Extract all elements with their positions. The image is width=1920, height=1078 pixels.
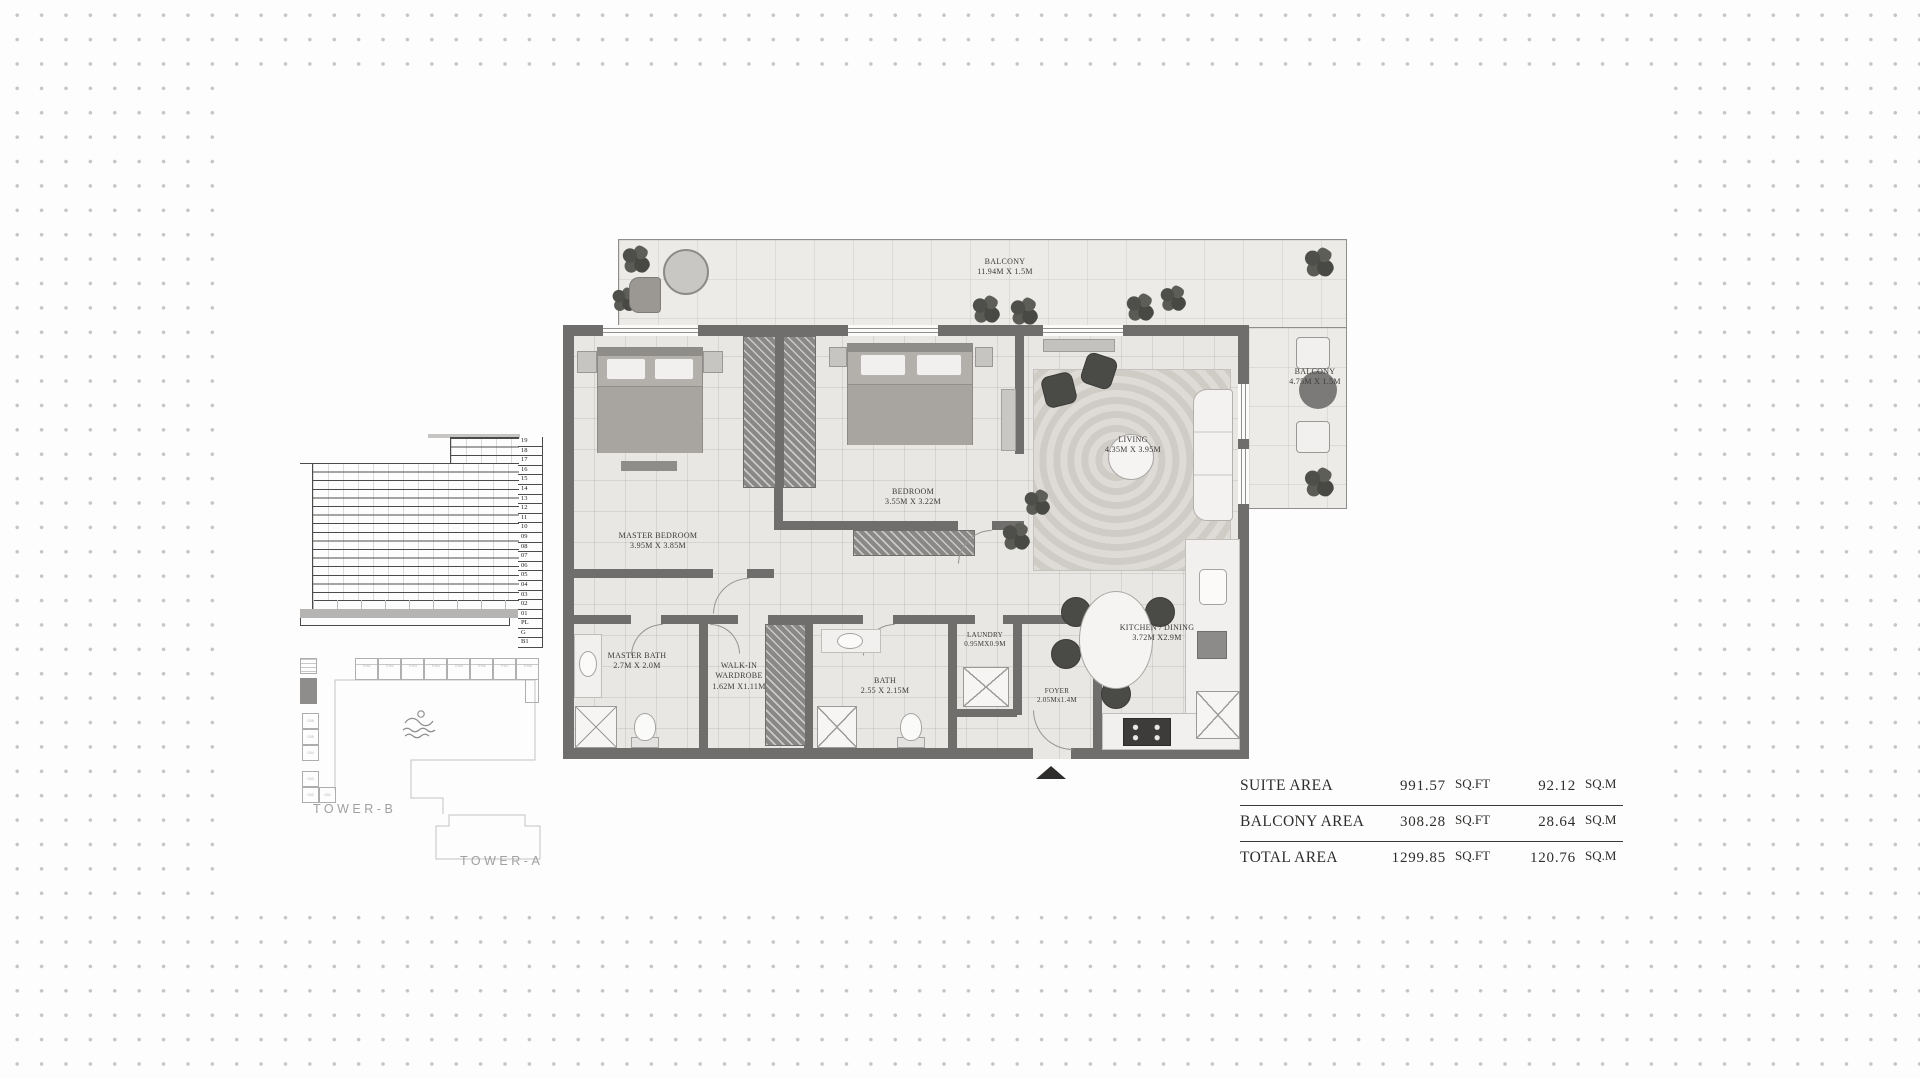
dining-chair: [1051, 639, 1081, 669]
floor-label: 03: [518, 591, 542, 601]
window: [603, 325, 698, 336]
floor-label: 13: [518, 495, 542, 505]
bed-bench: [621, 461, 677, 471]
wall: [1123, 325, 1249, 336]
elevation-main-block: [312, 463, 519, 602]
townhouse-box: TH05: [447, 658, 470, 680]
room-name: LIVING: [1105, 435, 1161, 445]
window: [1043, 325, 1123, 336]
ground-unit-box: G06: [302, 713, 319, 729]
pillow: [654, 358, 694, 380]
wall: [774, 521, 958, 530]
floor-label: 07: [518, 552, 542, 562]
area-sqm-unit: SQ.M: [1576, 848, 1623, 864]
room-dims: 0.95MX0.9M: [964, 640, 1006, 649]
area-row-label: TOTAL AREA: [1240, 849, 1390, 867]
ground-unit-label: G03: [307, 777, 314, 781]
area-table-row: TOTAL AREA 1299.85 SQ.FT 120.76 SQ.M: [1240, 842, 1623, 878]
floor-label: G: [518, 629, 542, 639]
wall: [768, 615, 863, 624]
ground-unit-label: G06: [307, 719, 314, 723]
nightstand: [703, 351, 723, 373]
elevation-floor-labels: 19 18 17 16 15 14 13 12 11 10 09 08 07 0…: [518, 437, 543, 648]
floor-label: 19: [518, 437, 542, 447]
room-name: BALCONY: [1289, 367, 1341, 377]
room-dims: 2.05Mx1.4M: [1037, 696, 1077, 705]
plant-icon: [1023, 489, 1051, 517]
basin: [579, 651, 597, 677]
window: [1238, 384, 1249, 439]
area-sqft-unit: SQ.FT: [1446, 812, 1490, 828]
oven: [1197, 631, 1227, 659]
floor-label: 14: [518, 485, 542, 495]
floor-label: 15: [518, 475, 542, 485]
room-dims: 1.62M X1.11M: [708, 682, 770, 692]
townhouse-box: TH02: [378, 658, 401, 680]
room-label-living: LIVING 4.35M X 3.95M: [1105, 435, 1161, 456]
site-ramp: [300, 658, 317, 674]
townhouse-box: TH01: [355, 658, 378, 680]
room-label-walkin: WALK-IN WARDROBE 1.62M X1.11M: [708, 661, 770, 692]
area-sqft-value: 1299.85: [1390, 850, 1446, 867]
wall: [698, 325, 848, 336]
blanket: [848, 384, 972, 445]
balcony-chair: [1296, 337, 1330, 369]
room-name: LAUNDRY: [964, 631, 1006, 640]
headboard: [848, 344, 972, 352]
master-bed: [597, 347, 703, 453]
site-outline: [297, 650, 547, 875]
ground-unit-box: G03: [302, 771, 319, 787]
kitchen-sink: [1199, 569, 1227, 605]
floor-plan: BALCONY 11.94M X 1.5M BALCONY 4.75M X 1.…: [563, 239, 1347, 784]
bedroom-wardrobe: [783, 336, 816, 488]
floor-label: 05: [518, 571, 542, 581]
pillow: [860, 354, 906, 376]
site-plan: TH01 TH02 TH03 TH04 TH05 TH06 TH07 TH08 …: [297, 650, 547, 875]
elevation-basement-level: [300, 618, 510, 627]
media-console: [1043, 339, 1115, 352]
elevation-podium-level: [312, 600, 519, 609]
area-sqft-value: 308.28: [1390, 814, 1446, 831]
ground-unit-label: G05: [307, 735, 314, 739]
plant-icon: [621, 245, 651, 275]
area-row-label: SUITE AREA: [1240, 777, 1390, 795]
fridge-shaft-box: [1196, 691, 1240, 739]
page-canvas: 19 18 17 16 15 14 13 12 11 10 09 08 07 0…: [0, 0, 1920, 1078]
townhouse-label: TH05: [454, 664, 463, 668]
site-small-unit: [525, 679, 539, 703]
wall: [563, 748, 1033, 759]
area-sqm-unit: SQ.M: [1576, 812, 1623, 828]
elevation-top-block: [450, 437, 519, 464]
basin: [837, 633, 863, 649]
ground-unit-label: G04: [307, 751, 314, 755]
wall: [563, 325, 574, 759]
sofa: [1193, 389, 1233, 521]
floor-label: 16: [518, 466, 542, 476]
hall-closet: [853, 530, 975, 556]
wall: [661, 615, 738, 624]
entry-arrow-icon: [1036, 766, 1066, 779]
wall: [563, 569, 713, 578]
wall: [699, 624, 708, 748]
pillow: [606, 358, 646, 380]
master-wardrobe: [743, 336, 776, 488]
plant-icon: [1303, 467, 1335, 499]
floor-label: 12: [518, 504, 542, 514]
area-sqm-value: 28.64: [1490, 814, 1576, 831]
balcony-chair: [1296, 421, 1330, 453]
wall: [957, 709, 1017, 717]
stove-cooktop: [1123, 718, 1171, 746]
townhouse-label: TH07: [500, 664, 509, 668]
room-name: MASTER BEDROOM: [619, 531, 698, 541]
floor-label: 04: [518, 581, 542, 591]
floor-label: 17: [518, 456, 542, 466]
ground-unit-box: G02: [302, 787, 319, 803]
room-label-laundry: LAUNDRY 0.95MX0.9M: [964, 631, 1006, 649]
room-dims: 4.75M X 1.5M: [1289, 377, 1341, 387]
townhouse-box: TH03: [401, 658, 424, 680]
nightstand: [975, 347, 993, 367]
desk: [1001, 389, 1016, 451]
walkin-wardrobe-shelves: [765, 624, 806, 746]
floor-label: 18: [518, 447, 542, 457]
floor-label: 11: [518, 514, 542, 524]
shower-box: [575, 706, 617, 748]
ground-unit-box: G05: [302, 729, 319, 745]
room-dims: 2.7M X 2.0M: [608, 661, 667, 671]
floor-label: 10: [518, 523, 542, 533]
wall: [747, 569, 774, 578]
townhouse-box: TH06: [470, 658, 493, 680]
townhouse-box: TH04: [424, 658, 447, 680]
wall: [1013, 615, 1022, 715]
ground-unit-label: G01: [324, 793, 331, 797]
room-name: MASTER BATH: [608, 651, 667, 661]
room-name: BATH: [861, 676, 910, 686]
floor-label: 09: [518, 533, 542, 543]
shower-box: [817, 706, 857, 748]
room-label-master-bedroom: MASTER BEDROOM 3.95M X 3.85M: [619, 531, 698, 552]
wall: [893, 615, 975, 624]
ground-unit-box: G04: [302, 745, 319, 761]
townhouse-label: TH06: [477, 664, 486, 668]
floor-label: 06: [518, 562, 542, 572]
townhouse-label: TH08: [523, 664, 532, 668]
floor-label: 08: [518, 543, 542, 553]
townhouse-box: TH07: [493, 658, 516, 680]
room-label-balcony-right: BALCONY 4.75M X 1.5M: [1289, 367, 1341, 388]
window: [848, 325, 938, 336]
tower-b-label: TOWER-B: [313, 802, 396, 816]
area-row-label: BALCONY AREA: [1240, 813, 1390, 831]
room-name: BALCONY: [977, 257, 1033, 267]
room-dims: 3.55M X 3.22M: [885, 497, 941, 507]
townhouse-label: TH03: [408, 664, 417, 668]
balcony-door: [1238, 449, 1249, 504]
wall: [1238, 439, 1249, 449]
room-dims: 3.72M X2.9M: [1120, 633, 1195, 643]
room-dims: 4.35M X 3.95M: [1105, 445, 1161, 455]
ground-unit-label: G02: [307, 793, 314, 797]
nightstand: [829, 347, 847, 367]
townhouse-label: TH04: [431, 664, 440, 668]
room-name: FOYER: [1037, 687, 1077, 696]
plant-icon: [1159, 285, 1187, 313]
plant-icon: [971, 295, 1001, 325]
room-name: BEDROOM: [885, 487, 941, 497]
plant-icon: [1009, 297, 1039, 327]
site-highlight-unit: [300, 678, 317, 704]
wall: [563, 615, 631, 624]
room-name: WALK-IN WARDROBE: [708, 661, 770, 682]
headboard: [598, 348, 702, 356]
blanket: [598, 386, 702, 453]
wall: [1238, 325, 1249, 384]
toilet: [900, 713, 922, 741]
area-sqft-value: 991.57: [1390, 778, 1446, 795]
room-dims: 2.55 X 2.15M: [861, 686, 910, 696]
area-sqm-value: 92.12: [1490, 778, 1576, 795]
room-label-kitchen: KITCHEN / DINING 3.72M X2.9M: [1120, 623, 1195, 644]
wall: [948, 615, 957, 748]
balcony-table: [663, 249, 709, 295]
townhouse-box: TH08: [516, 658, 539, 680]
area-sqft-unit: SQ.FT: [1446, 776, 1490, 792]
pillow: [916, 354, 962, 376]
bedroom-bed: [847, 343, 973, 445]
toilet: [634, 713, 656, 741]
townhouse-label: TH01: [362, 664, 371, 668]
wall: [1015, 336, 1024, 454]
tower-elevation-diagram: 19 18 17 16 15 14 13 12 11 10 09 08 07 0…: [300, 437, 542, 637]
room-label-balcony-top: BALCONY 11.94M X 1.5M: [977, 257, 1033, 278]
floor-label: 02: [518, 600, 542, 610]
room-label-foyer: FOYER 2.05Mx1.4M: [1037, 687, 1077, 705]
tower-a-label: TOWER-A: [460, 854, 543, 868]
area-table: SUITE AREA 991.57 SQ.FT 92.12 SQ.M BALCO…: [1240, 770, 1623, 878]
floor-label: B1: [518, 638, 542, 648]
area-table-row: BALCONY AREA 308.28 SQ.FT 28.64 SQ.M: [1240, 806, 1623, 842]
area-sqm-value: 120.76: [1490, 850, 1576, 867]
plant-icon: [1001, 522, 1031, 552]
plant-icon: [1303, 247, 1335, 279]
room-label-bedroom: BEDROOM 3.55M X 3.22M: [885, 487, 941, 508]
plant-icon: [1125, 293, 1155, 323]
room-label-master-bath: MASTER BATH 2.7M X 2.0M: [608, 651, 667, 672]
nightstand: [577, 351, 597, 373]
pool-swimmer-icon: [403, 711, 435, 738]
balcony-armchair: [629, 277, 661, 313]
laundry-machine-box: [963, 667, 1009, 707]
floor-label: PL: [518, 619, 542, 629]
room-name: KITCHEN / DINING: [1120, 623, 1195, 633]
room-dims: 3.95M X 3.85M: [619, 541, 698, 551]
room-label-bath: BATH 2.55 X 2.15M: [861, 676, 910, 697]
area-sqft-unit: SQ.FT: [1446, 848, 1490, 864]
townhouse-label: TH02: [385, 664, 394, 668]
area-table-row: SUITE AREA 991.57 SQ.FT 92.12 SQ.M: [1240, 770, 1623, 806]
elevation-ground-band: [300, 609, 518, 618]
ground-unit-box: G01: [319, 787, 336, 803]
area-sqm-unit: SQ.M: [1576, 776, 1623, 792]
room-dims: 11.94M X 1.5M: [977, 267, 1033, 277]
floor-label: 01: [518, 610, 542, 620]
